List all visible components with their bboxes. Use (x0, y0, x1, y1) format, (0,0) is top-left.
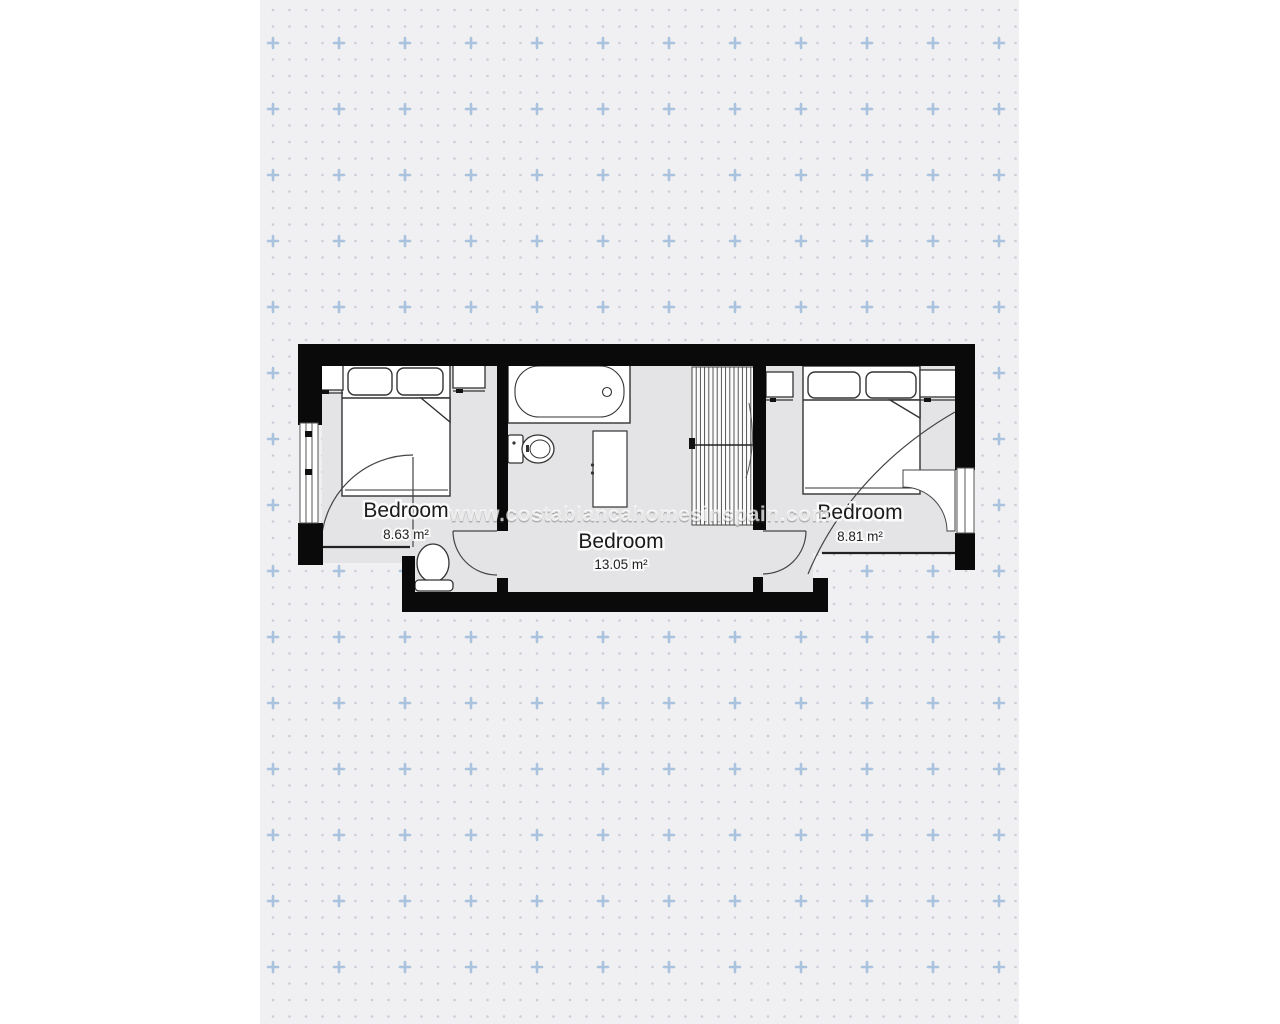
nightstand-right-icon (766, 372, 793, 402)
wall-left-lower (298, 523, 323, 565)
wardrobe-left-tick (456, 389, 463, 393)
wall-alcove-left (402, 556, 415, 592)
toilet-middle-hinge (526, 445, 529, 452)
wall-divider-1-stub (497, 578, 508, 593)
wall-bottom-right-stub (813, 578, 828, 592)
window-right-icon (957, 468, 974, 533)
floorplan-canvas: Bedroom 8.63 m² Bedroom 13.05 m² Bedroom… (0, 0, 1280, 1024)
nightstand-left-tick (322, 390, 329, 394)
wall-top (298, 344, 975, 366)
room-middle-area: 13.05 m² (594, 557, 648, 572)
cabinet-icon (591, 431, 627, 507)
wardrobe-left-icon (453, 362, 485, 393)
room-left-label: Bedroom (363, 499, 448, 522)
window-left-tick-1 (305, 431, 312, 437)
bathtub-drain (603, 388, 612, 397)
bed-right-pillow-1 (808, 372, 860, 398)
toilet-middle-button (512, 441, 515, 444)
bed-right-pillow-2 (866, 372, 916, 398)
toilet-alcove-bowl (417, 544, 449, 582)
cabinet-handle-2 (591, 471, 594, 474)
watermark-text: www.costablancahomesinspain.com (448, 503, 830, 526)
cabinet-box (593, 431, 627, 507)
wardrobe-right-box (920, 370, 957, 397)
room-left-area: 8.63 m² (383, 527, 429, 542)
window-left-tick-2 (305, 469, 312, 475)
bathtub-icon (508, 360, 630, 423)
toilet-middle-icon (508, 435, 554, 463)
floor-doorway-1 (497, 531, 508, 578)
bed-left-icon (342, 362, 450, 496)
watermark: www.costablancahomesinspain.com www.cost… (448, 503, 830, 528)
bed-left-pillow-1 (348, 368, 392, 395)
wall-right-lower (955, 533, 975, 570)
wall-right-upper (955, 344, 975, 470)
stairs-outline (692, 367, 754, 525)
bed-right-icon (803, 366, 920, 494)
wardrobe-right-icon (920, 370, 957, 402)
cabinet-handle-1 (591, 463, 594, 466)
wall-left-upper (298, 344, 322, 425)
window-left-icon (300, 423, 318, 523)
nightstand-right-box (766, 372, 793, 397)
floor-left-door-strip (322, 547, 408, 563)
room-right-area: 8.81 m² (837, 529, 883, 544)
bed-left-pillow-2 (397, 368, 443, 395)
stairs-icon (689, 367, 754, 525)
stairs-handle-tick (689, 438, 695, 449)
wardrobe-right-tick (924, 398, 931, 402)
wall-bottom (402, 592, 828, 612)
toilet-middle-tank (508, 435, 523, 463)
room-middle-label: Bedroom (578, 530, 663, 553)
floorplan-page: Bedroom 8.63 m² Bedroom 13.05 m² Bedroom… (0, 0, 1280, 1024)
toilet-alcove-base (415, 580, 453, 591)
nightstand-right-tick (770, 398, 776, 402)
